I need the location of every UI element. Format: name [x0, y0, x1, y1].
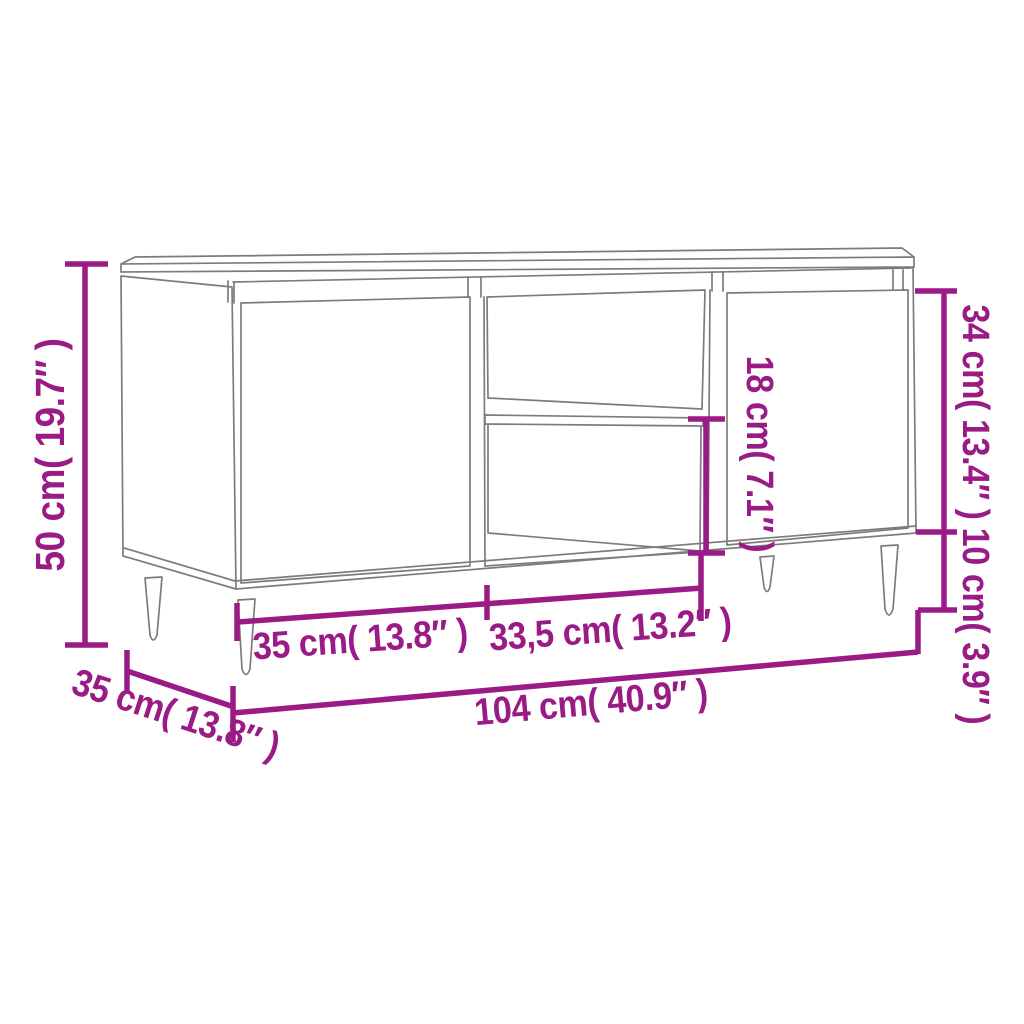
cabinet-left-side	[121, 276, 236, 589]
overall-height-dimension-label: 50 cm( 19.7″ )	[28, 339, 73, 572]
leg-height-dimension-label: 10 cm( 3.9″ )	[955, 528, 998, 725]
cabinet-right-edge	[913, 267, 916, 533]
middle-shelf	[485, 398, 703, 426]
cabinet-drawing	[121, 248, 916, 675]
middle-opening-width-dimension-label: 33,5 cm( 13.2″ )	[487, 599, 732, 659]
cabinet-left-side-bottom-edge	[124, 548, 235, 581]
opening-height-dimension-label: 18 cm( 7.1″ )	[739, 356, 782, 553]
middle-compartment-walls	[484, 290, 710, 566]
dimension-annotations: 50 cm( 19.7″ ) 35 cm( 13.8″ ) 35 cm( 13.…	[28, 264, 997, 767]
right-height-dimension-line	[915, 291, 957, 610]
cabinet-top-panel	[121, 248, 914, 272]
cabinet-bottom-edges	[235, 526, 916, 589]
leg-back-right	[760, 556, 774, 592]
overall-width-dimension-label: 104 cm( 40.9″ )	[473, 670, 710, 733]
right-door-height-dimension-label: 34 cm( 13.4″ )	[955, 304, 998, 519]
opening-height-dimension-line	[688, 419, 725, 553]
middle-compartment-floor	[485, 425, 701, 566]
leg-front-right	[881, 545, 898, 615]
tv-cabinet-diagram-svg: 50 cm( 19.7″ ) 35 cm( 13.8″ ) 35 cm( 13.…	[0, 0, 1024, 1024]
dimension-diagram: 50 cm( 19.7″ ) 35 cm( 13.8″ ) 35 cm( 13.…	[0, 0, 1024, 1024]
left-door	[241, 297, 470, 583]
leg-back-left	[145, 577, 162, 640]
